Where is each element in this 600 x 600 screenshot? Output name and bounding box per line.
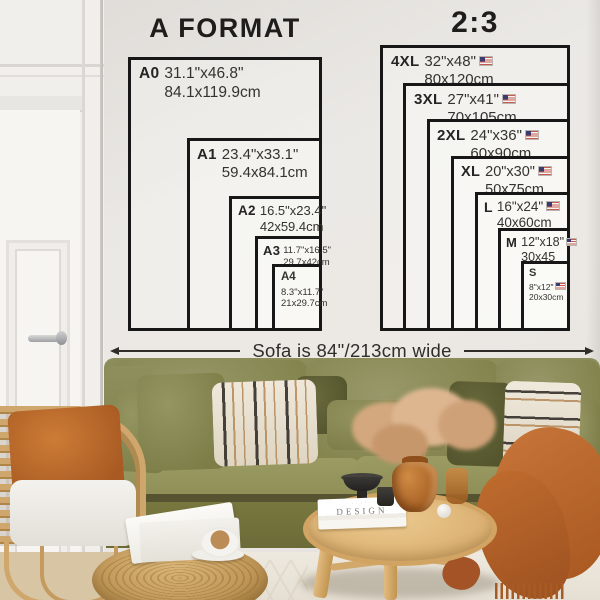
size-inches: 8.3"x11.7" (281, 287, 319, 298)
us-flag-icon (502, 94, 516, 104)
size-cm: 21x29.7cm (281, 298, 319, 309)
size-inches: 31.1"x46.8" (164, 65, 260, 84)
pillow-striped (212, 379, 319, 467)
arrow-right-icon (585, 347, 594, 355)
black-cup (377, 487, 394, 506)
living-room-scene: A FORMAT 2:3 A0 31.1"x46.8" 84.1x119.9cm… (0, 0, 600, 600)
wall-molding (0, 64, 104, 67)
a-format-title: A FORMAT (118, 13, 332, 44)
size-label: S (529, 267, 567, 280)
size-label: 3XL (414, 91, 442, 108)
size-inches: 8"x12" (529, 282, 553, 292)
size-label: A4 (281, 271, 319, 285)
arrow-left-icon (110, 347, 119, 355)
size-inches: 11.7"x16.5" (283, 245, 331, 257)
decor-ball (437, 504, 451, 518)
size-label: A1 (197, 146, 217, 163)
size-cm: 59.4x84.1cm (222, 164, 308, 182)
annotation-line (119, 350, 240, 352)
dried-flowers (438, 400, 496, 450)
size-inches: 12"x18" (521, 235, 564, 249)
size-cm: 20x30cm (529, 292, 567, 302)
size-cm: 42x59.4cm (260, 219, 326, 235)
size-label: XL (461, 164, 480, 180)
size-box-s: S 8"x12" 20x30cm (521, 261, 570, 331)
size-label: M (506, 235, 517, 250)
size-label: 2XL (437, 127, 465, 144)
amber-glass (446, 468, 468, 504)
wall-molding (0, 75, 104, 77)
coffee-cup (200, 527, 240, 558)
book-title: DESIGN (318, 504, 406, 517)
size-inches: 20"x30" (485, 164, 535, 180)
us-flag-icon (555, 282, 566, 290)
chair-seat-cushion (10, 480, 136, 546)
us-flag-icon (538, 166, 552, 176)
annotation-line (464, 350, 585, 352)
us-flag-icon (525, 130, 539, 140)
size-label: A3 (263, 243, 280, 258)
throw-fringe (495, 583, 565, 599)
amber-vase (392, 462, 438, 512)
size-cm: 84.1x119.9cm (164, 84, 260, 103)
size-label: L (484, 199, 493, 215)
size-inches: 32"x48" (424, 53, 476, 70)
size-label: 4XL (391, 53, 419, 70)
size-box-a4: A4 8.3"x11.7" 21x29.7cm (272, 264, 322, 331)
size-inches: 23.4"x33.1" (222, 146, 308, 164)
size-inches: 24"x36" (470, 127, 522, 144)
size-inches: 16.5"x23.4" (260, 203, 326, 219)
size-inches: 16"x24" (497, 199, 543, 214)
size-label: A2 (238, 203, 256, 218)
us-flag-icon (546, 201, 560, 211)
us-flag-icon (566, 238, 577, 246)
size-inches: 27"x41" (447, 91, 499, 108)
ratio-2-3-title: 2:3 (380, 6, 570, 40)
size-label: A0 (139, 65, 159, 83)
door-handle-rosette (56, 331, 67, 345)
us-flag-icon (479, 56, 493, 66)
